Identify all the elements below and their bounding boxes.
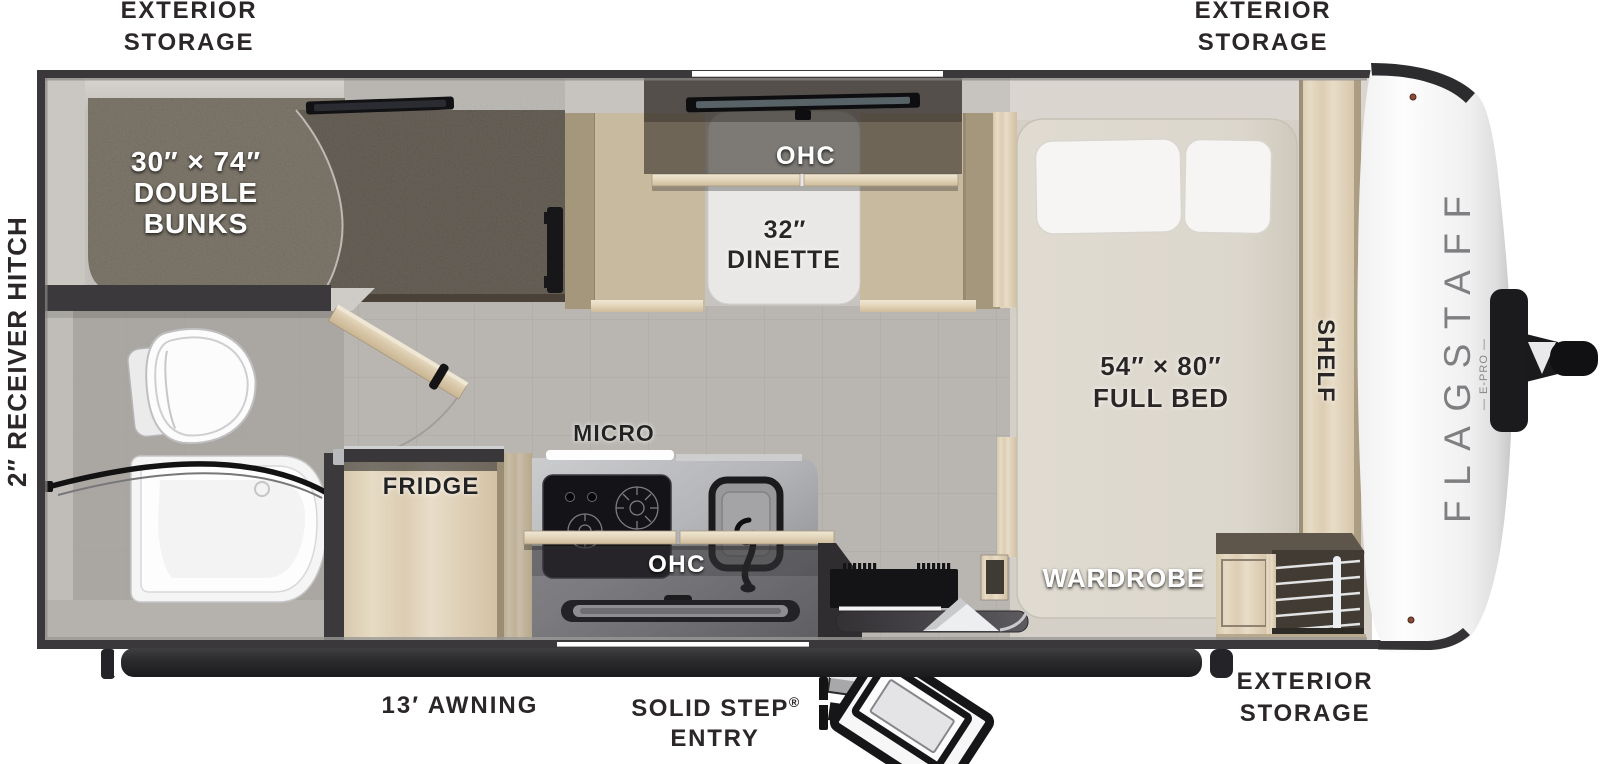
- svg-text:STORAGE: STORAGE: [124, 29, 255, 56]
- svg-text:OHC: OHC: [648, 551, 706, 578]
- svg-text:FULL BED: FULL BED: [1093, 383, 1229, 413]
- svg-text:13′ AWNING: 13′ AWNING: [382, 692, 539, 719]
- svg-text:MICRO: MICRO: [573, 420, 655, 446]
- svg-text:OHC: OHC: [776, 142, 836, 170]
- svg-text:DOUBLE: DOUBLE: [134, 177, 258, 208]
- svg-text:30″ × 74″: 30″ × 74″: [131, 146, 261, 177]
- svg-text:ENTRY: ENTRY: [670, 725, 759, 752]
- svg-text:EXTERIOR: EXTERIOR: [1237, 668, 1374, 695]
- svg-text:DINETTE: DINETTE: [727, 246, 841, 274]
- svg-text:2″ RECEIVER HITCH: 2″ RECEIVER HITCH: [2, 216, 32, 487]
- svg-text:STORAGE: STORAGE: [1240, 700, 1371, 727]
- svg-text:STORAGE: STORAGE: [1198, 29, 1329, 56]
- svg-text:EXTERIOR: EXTERIOR: [121, 0, 258, 24]
- svg-text:EXTERIOR: EXTERIOR: [1195, 0, 1332, 24]
- svg-text:WARDROBE: WARDROBE: [1043, 563, 1206, 593]
- svg-text:54″ × 80″: 54″ × 80″: [1100, 351, 1221, 381]
- svg-text:FRIDGE: FRIDGE: [383, 473, 480, 500]
- svg-text:SHELF: SHELF: [1312, 319, 1339, 403]
- svg-text:BUNKS: BUNKS: [144, 208, 249, 239]
- svg-text:— E-PRO —: — E-PRO —: [1478, 338, 1490, 410]
- svg-text:FLAGSTAFF: FLAGSTAFF: [1437, 181, 1478, 523]
- svg-text:32″: 32″: [764, 216, 807, 244]
- svg-text:SOLID STEP®: SOLID STEP®: [631, 694, 801, 722]
